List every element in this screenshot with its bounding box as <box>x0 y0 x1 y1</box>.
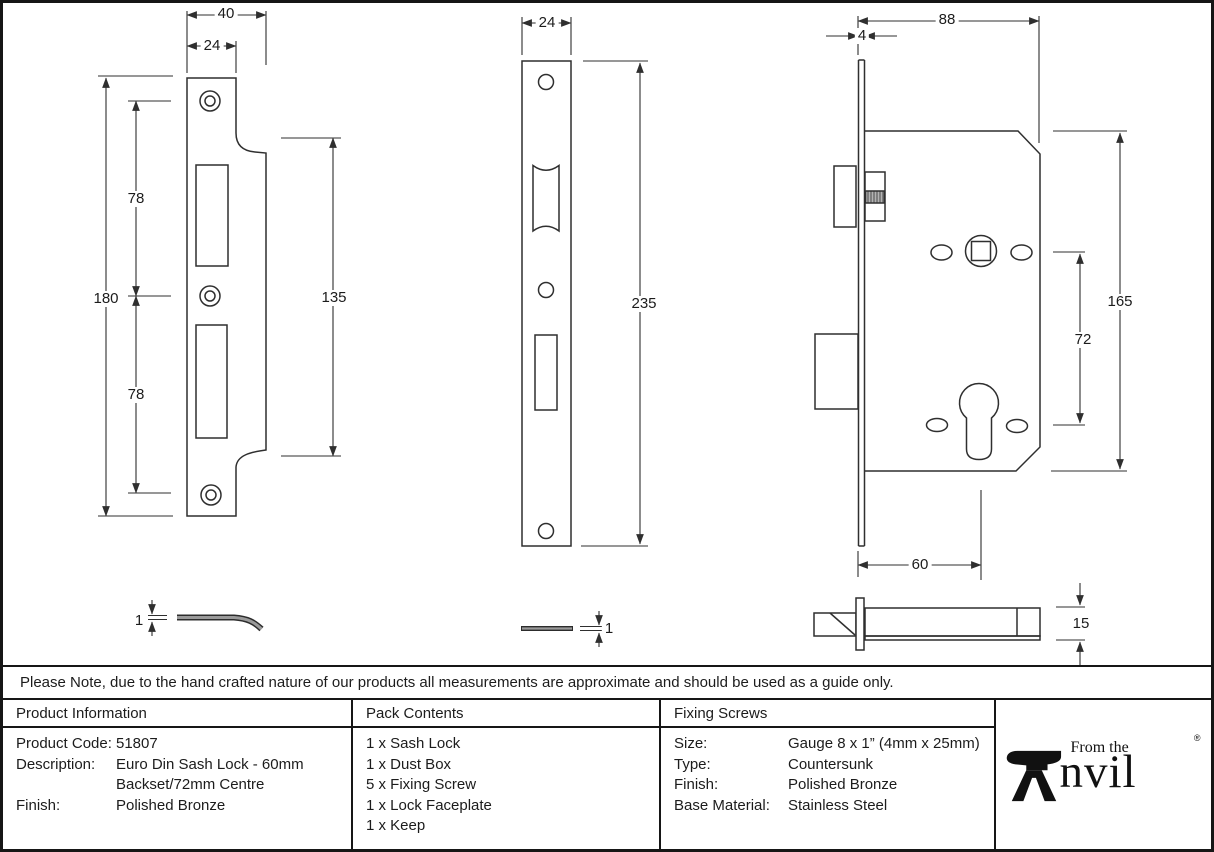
note-bar: Please Note, due to the hand crafted nat… <box>3 665 1211 700</box>
dim-faceplate-height: 235 <box>628 296 659 312</box>
pack-contents-header: Pack Contents <box>353 700 659 728</box>
dim-keep-overall-height: 180 <box>90 291 121 307</box>
dim-lock-depth: 88 <box>936 12 959 28</box>
pack-contents-column: Pack Contents 1 x Sash Lock 1 x Dust Box… <box>353 700 661 849</box>
registered-mark: ® <box>1194 733 1201 743</box>
technical-drawing-area: 40 24 180 78 78 135 1 24 235 1 88 4 165 … <box>3 3 1211 665</box>
anvil-icon <box>1005 747 1063 805</box>
fixing-screws-header: Fixing Screws <box>661 700 994 728</box>
table-row: Finish: Polished Bronze <box>674 775 988 796</box>
info-table: Product Information Product Code: 51807 … <box>3 700 1211 849</box>
faceplate-front-view <box>522 61 571 546</box>
dim-faceplate-thickness: 1 <box>602 621 616 637</box>
fixing-screws-column: Fixing Screws Size: Gauge 8 x 1” (4mm x … <box>661 700 996 849</box>
screw-finish-label: Finish: <box>674 775 788 796</box>
finish-label: Finish: <box>16 796 116 817</box>
technical-drawing <box>3 3 1211 665</box>
lock-dimension-lines <box>826 16 1127 580</box>
dim-keep-thickness: 1 <box>132 613 146 629</box>
table-row: Size: Gauge 8 x 1” (4mm x 25mm) <box>674 734 988 755</box>
type-value: Countersunk <box>788 755 873 776</box>
keep-side-view <box>148 600 262 636</box>
pack-item: 1 x Sash Lock <box>366 734 653 755</box>
pack-item: 5 x Fixing Screw <box>366 775 653 796</box>
from-the-anvil-logo: From the ® nvil <box>1005 731 1203 819</box>
dim-keep-slot-width: 24 <box>201 38 224 54</box>
faceplate-dimension-lines <box>522 17 648 546</box>
table-row: Product Code: 51807 <box>16 734 345 755</box>
table-row: Description: Euro Din Sash Lock - 60mm B… <box>16 755 345 796</box>
dim-lock-faceplate-thickness: 4 <box>855 28 869 44</box>
logo-name: nvil <box>1060 745 1137 799</box>
pack-item: 1 x Dust Box <box>366 755 653 776</box>
size-value: Gauge 8 x 1” (4mm x 25mm) <box>788 734 980 755</box>
product-code-value: 51807 <box>116 734 158 755</box>
product-code-label: Product Code: <box>16 734 116 755</box>
dim-lock-backset: 60 <box>909 557 932 573</box>
keep-dimension-lines <box>98 11 341 516</box>
brand-cell: From the ® nvil <box>996 700 1211 849</box>
product-information-body: Product Code: 51807 Description: Euro Di… <box>3 728 351 849</box>
pack-contents-body: 1 x Sash Lock 1 x Dust Box 5 x Fixing Sc… <box>353 728 659 849</box>
size-label: Size: <box>674 734 788 755</box>
table-row: Type: Countersunk <box>674 755 988 776</box>
dim-lock-case-thickness: 15 <box>1070 616 1093 632</box>
base-material-value: Stainless Steel <box>788 796 887 817</box>
type-label: Type: <box>674 755 788 776</box>
dim-keep-lip-height: 135 <box>318 290 349 306</box>
description-line-2: Backset/72mm Centre <box>116 775 304 796</box>
base-material-label: Base Material: <box>674 796 788 817</box>
table-row: Finish: Polished Bronze <box>16 796 345 817</box>
finish-value: Polished Bronze <box>116 796 225 817</box>
screw-finish-value: Polished Bronze <box>788 775 897 796</box>
dim-lock-centres: 72 <box>1072 332 1095 348</box>
lock-side-view <box>814 598 1040 650</box>
dim-lock-height: 165 <box>1104 294 1135 310</box>
spec-sheet: 40 24 180 78 78 135 1 24 235 1 88 4 165 … <box>0 0 1214 852</box>
fixing-screws-body: Size: Gauge 8 x 1” (4mm x 25mm) Type: Co… <box>661 728 994 849</box>
product-information-column: Product Information Product Code: 51807 … <box>3 700 353 849</box>
table-row: Base Material: Stainless Steel <box>674 796 988 817</box>
description-label: Description: <box>16 755 116 796</box>
description-line-1: Euro Din Sash Lock - 60mm <box>116 755 304 776</box>
lock-front-view <box>815 60 1040 546</box>
dim-keep-upper-spacing: 78 <box>125 191 148 207</box>
note-text: Please Note, due to the hand crafted nat… <box>20 674 894 691</box>
product-information-header: Product Information <box>3 700 351 728</box>
faceplate-side-view <box>521 611 604 647</box>
dim-keep-width: 40 <box>215 6 238 22</box>
keep-front-view <box>187 78 266 516</box>
pack-item: 1 x Lock Faceplate <box>366 796 653 817</box>
dim-faceplate-width: 24 <box>536 15 559 31</box>
pack-item: 1 x Keep <box>366 816 653 837</box>
description-value: Euro Din Sash Lock - 60mm Backset/72mm C… <box>116 755 304 796</box>
dim-keep-lower-spacing: 78 <box>125 387 148 403</box>
